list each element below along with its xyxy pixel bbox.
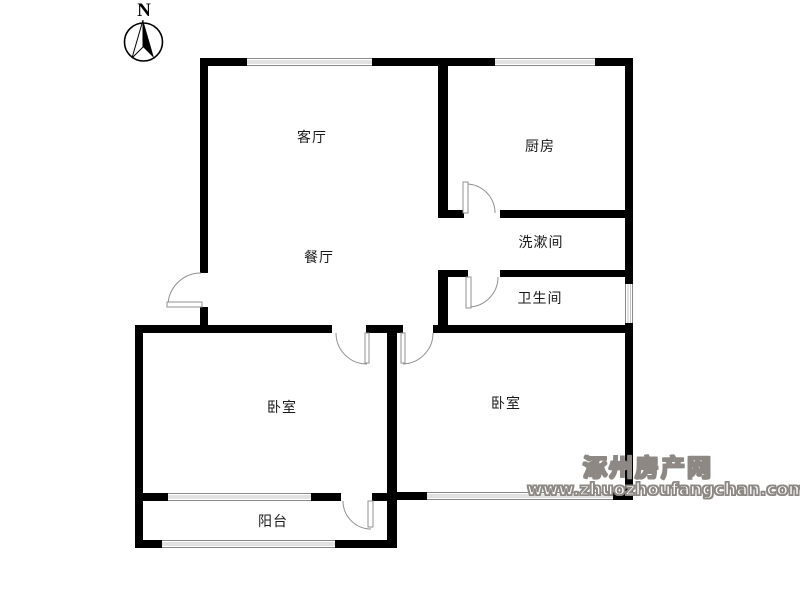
room-label-bathroom: 卫生间	[518, 288, 563, 308]
bedroom-left-door	[336, 333, 369, 364]
balcony-door	[343, 501, 373, 529]
wall-bedroom1-bottom-right	[311, 493, 341, 501]
bedroom-right-door	[401, 333, 433, 364]
wall-kitchen-bottom-right	[500, 210, 633, 218]
room-label-bedroom-left: 卧室	[267, 397, 297, 417]
entry-door	[167, 273, 202, 307]
compass-icon	[125, 20, 163, 61]
balcony-window	[162, 540, 335, 548]
wall-left-outer	[135, 325, 143, 548]
wall-bathroom-left	[438, 270, 448, 333]
room-label-kitchen: 厨房	[525, 136, 555, 156]
wall-bedroom-divider	[387, 333, 397, 548]
room-label-living: 客厅	[297, 127, 327, 147]
wall-kitchen-bottom-left	[438, 210, 464, 218]
bedroom-left-window	[168, 493, 311, 501]
watermark-url: www.zhuozhoufangchan.com	[527, 481, 769, 499]
wall-bedrooms-top-mid	[366, 325, 403, 333]
wall-left-upper	[200, 58, 208, 273]
room-label-balcony: 阳台	[258, 511, 288, 531]
bathroom-door	[466, 277, 498, 308]
kitchen-door	[463, 182, 495, 213]
floor-plan-canvas: N 客厅 餐厅 厨房 洗漱间 卫生间 卧室 卧室 阳台 涿州房产网 www.zh…	[0, 0, 800, 600]
room-label-dining: 餐厅	[304, 247, 334, 267]
wall-bedrooms-top-left	[135, 325, 332, 333]
room-label-bedroom-right: 卧室	[491, 393, 521, 413]
compass-north-label: N	[133, 0, 155, 22]
watermark: 涿州房产网 www.zhuozhoufangchan.com	[527, 455, 769, 499]
living-room-window	[247, 58, 372, 66]
wall-bedroom2-bottom-left	[397, 492, 427, 500]
kitchen-window	[495, 58, 595, 66]
wall-balcony-bottom-left	[135, 540, 162, 548]
room-label-washroom: 洗漱间	[519, 232, 564, 252]
wall-bedroom1-bottom-left	[135, 493, 168, 501]
wall-bedrooms-top-right	[433, 325, 633, 333]
wall-balcony-door-stub	[372, 493, 397, 501]
watermark-site-name: 涿州房产网	[527, 455, 769, 481]
wall-washroom-bottom-right	[500, 270, 633, 277]
wall-right-upper	[625, 58, 633, 284]
wall-living-kitchen-divider	[438, 58, 448, 218]
bathroom-window	[625, 284, 633, 323]
wall-balcony-bottom-right	[335, 540, 397, 548]
floor-plan-drawing	[0, 0, 800, 600]
doors	[167, 182, 498, 529]
